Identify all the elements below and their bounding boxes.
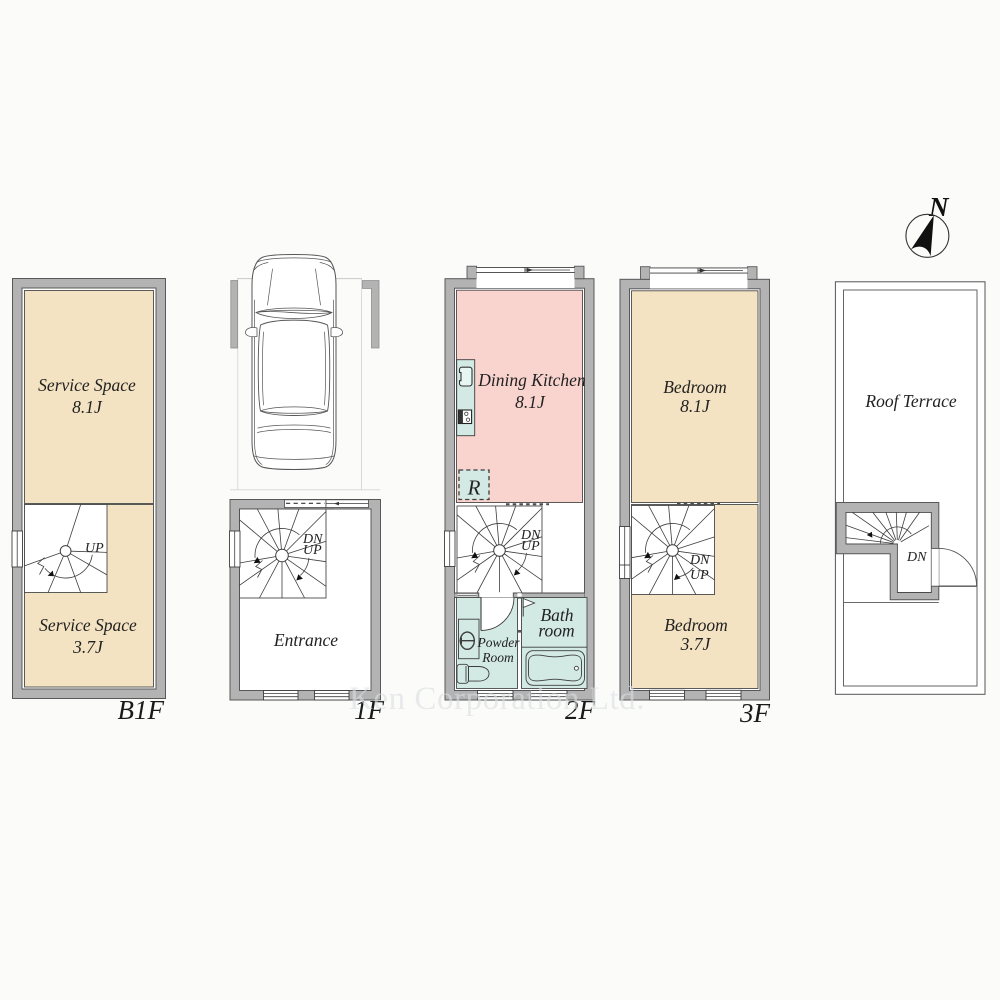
svg-text:UP: UP xyxy=(690,568,709,583)
svg-text:UP: UP xyxy=(521,539,540,554)
svg-text:R: R xyxy=(467,476,481,500)
svg-text:Bedroom: Bedroom xyxy=(664,615,728,635)
svg-text:Room: Room xyxy=(481,650,514,665)
svg-text:3.7J: 3.7J xyxy=(72,637,104,657)
svg-text:DN: DN xyxy=(906,550,927,565)
svg-text:Entrance: Entrance xyxy=(273,630,338,650)
svg-text:DN: DN xyxy=(689,553,710,568)
svg-text:B1F: B1F xyxy=(118,695,165,725)
svg-text:UP: UP xyxy=(85,541,104,556)
svg-text:room: room xyxy=(538,621,574,641)
svg-text:8.1J: 8.1J xyxy=(515,392,546,412)
svg-text:8.1J: 8.1J xyxy=(680,396,711,416)
svg-text:8.1J: 8.1J xyxy=(72,397,103,417)
svg-text:Bedroom: Bedroom xyxy=(663,377,727,397)
svg-text:Dining Kitchen: Dining Kitchen xyxy=(477,370,586,390)
svg-text:Roof Terrace: Roof Terrace xyxy=(864,391,956,411)
svg-text:3F: 3F xyxy=(739,698,771,728)
svg-text:Service Space: Service Space xyxy=(38,375,136,395)
svg-text:Ken Corporation Ltd.: Ken Corporation Ltd. xyxy=(349,681,645,717)
svg-text:Service Space: Service Space xyxy=(39,615,137,635)
svg-text:UP: UP xyxy=(303,543,322,558)
svg-text:Powder: Powder xyxy=(477,635,521,650)
svg-text:3.7J: 3.7J xyxy=(680,634,712,654)
